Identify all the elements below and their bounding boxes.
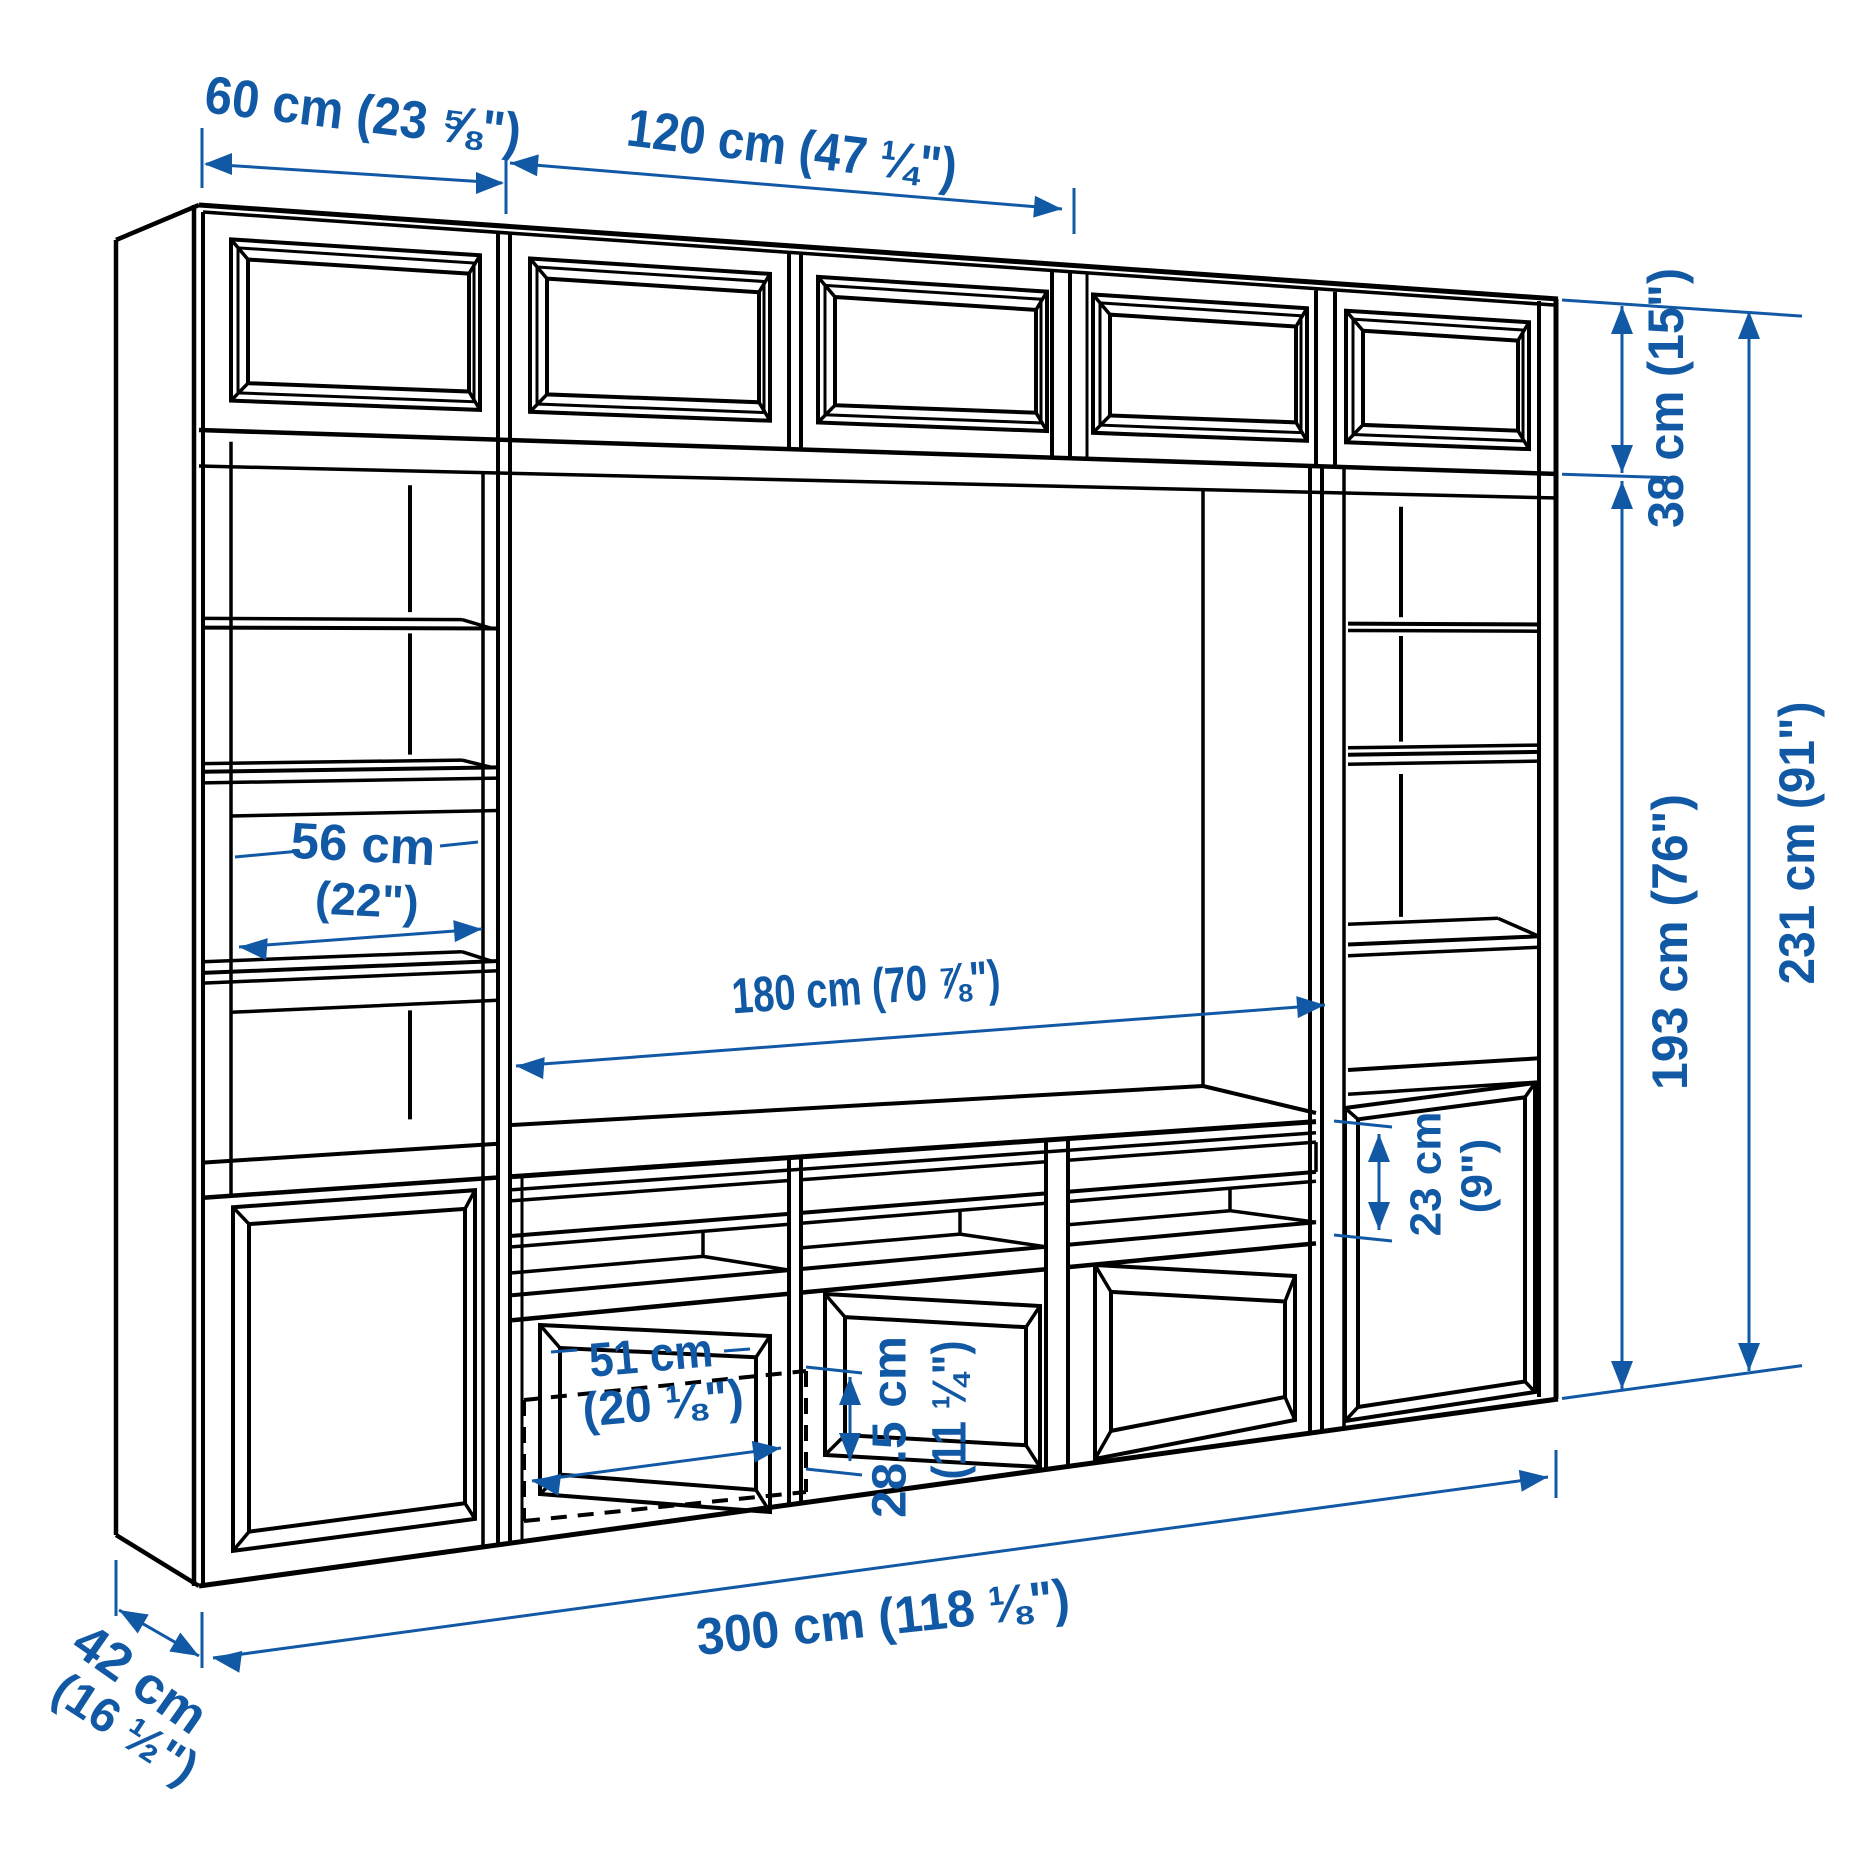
svg-text:231 cm (91"): 231 cm (91") xyxy=(1769,702,1825,985)
svg-text:193 cm (76"): 193 cm (76") xyxy=(1642,794,1698,1090)
svg-text:38 cm (15"): 38 cm (15") xyxy=(1638,268,1694,528)
svg-text:56 cm: 56 cm xyxy=(289,812,436,876)
svg-text:28.5 cm: 28.5 cm xyxy=(864,1336,917,1518)
svg-text:23 cm: 23 cm xyxy=(1402,1112,1451,1237)
svg-text:180 cm (70 ⅞"): 180 cm (70 ⅞") xyxy=(730,950,1002,1025)
svg-text:120 cm (47 ¼"): 120 cm (47 ¼") xyxy=(624,98,961,197)
svg-text:(22"): (22") xyxy=(314,871,420,928)
svg-text:(11 ¼"): (11 ¼") xyxy=(924,1341,977,1480)
svg-text:60 cm (23 ⅝"): 60 cm (23 ⅝") xyxy=(202,65,525,162)
svg-text:(9"): (9") xyxy=(1453,1139,1502,1214)
